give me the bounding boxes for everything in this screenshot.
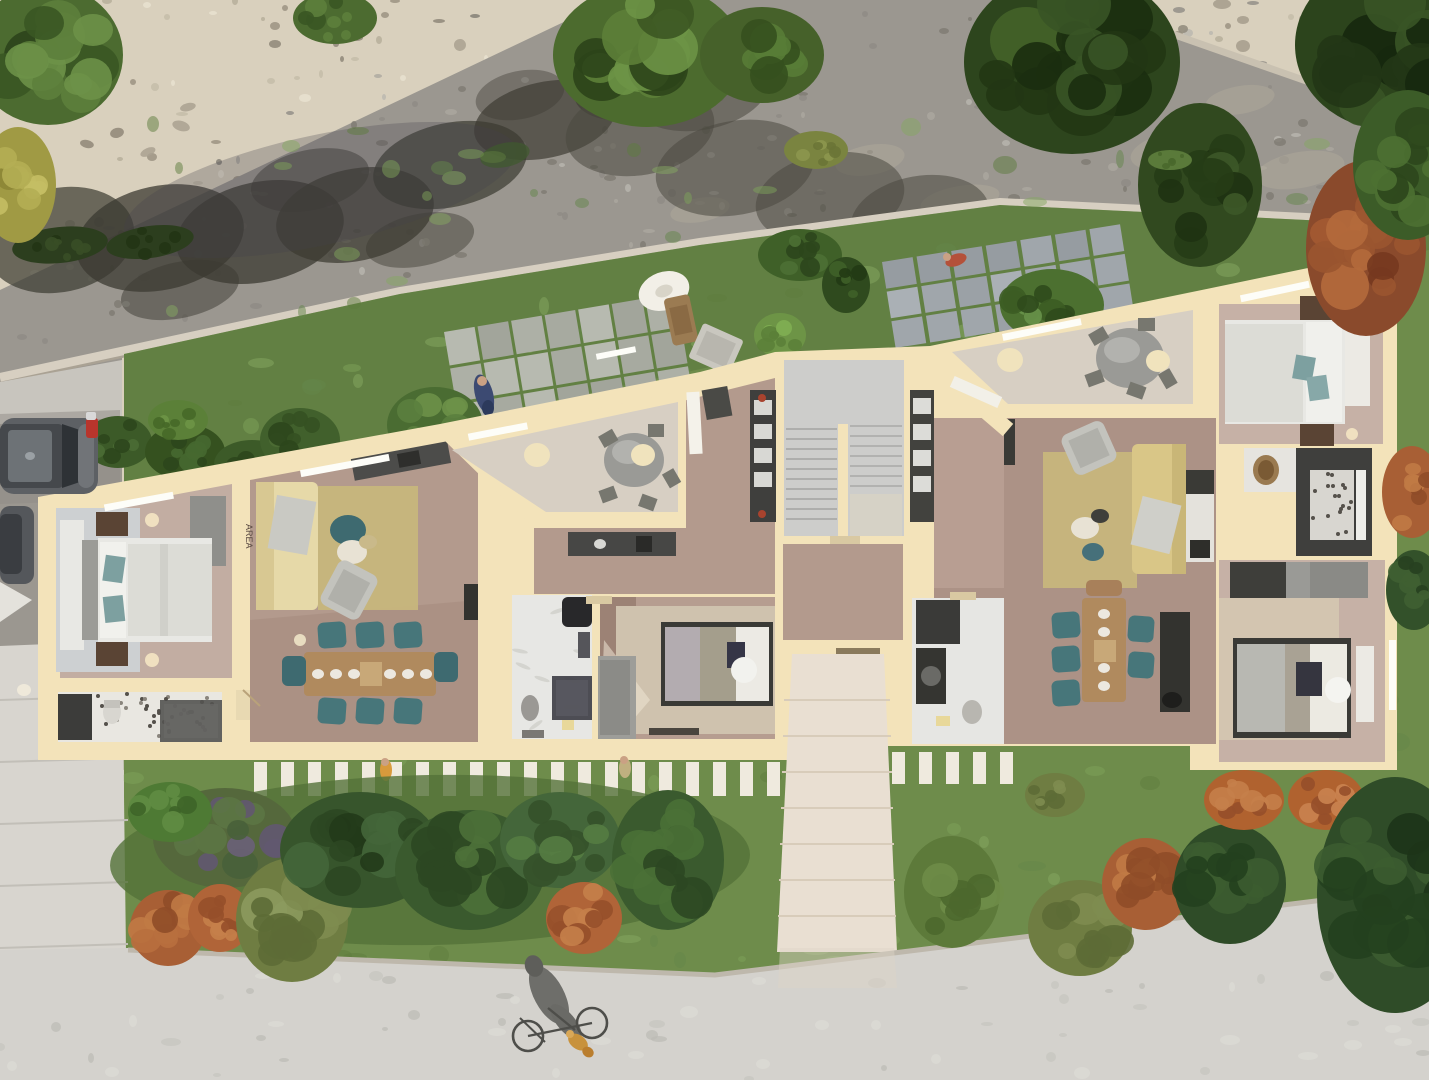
- svg-text:AREA: AREA: [244, 524, 254, 549]
